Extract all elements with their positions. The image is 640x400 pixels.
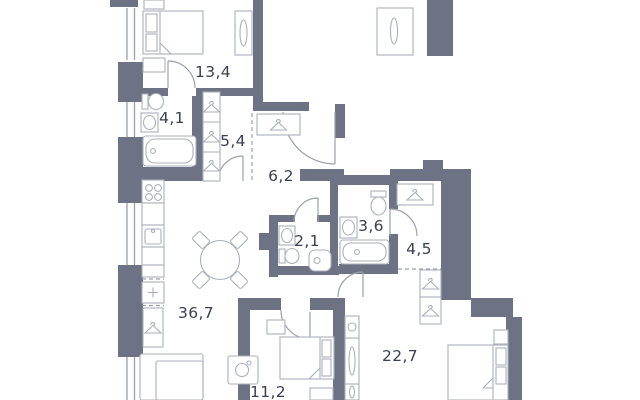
wall [250, 298, 281, 310]
cabinet-hanger [143, 308, 163, 347]
washer [309, 250, 331, 271]
window [127, 102, 135, 137]
room-label-bathroom-ensuite: 4,1 [159, 109, 185, 127]
kitchen-counter [142, 203, 164, 225]
window [127, 8, 135, 60]
toilet [142, 94, 164, 110]
room-label-hallway: 5,4 [220, 132, 246, 150]
closet-corridor [257, 114, 300, 135]
sink [141, 113, 158, 132]
nightstand [310, 388, 333, 400]
nightstand [144, 0, 164, 9]
toilet-wc [279, 249, 299, 264]
wall [238, 298, 250, 400]
room-label-hall-small: 4,5 [406, 240, 432, 258]
nightstand [143, 58, 165, 72]
door-hallway [218, 156, 243, 181]
bathtub-main [340, 240, 389, 264]
closet-hallway [203, 92, 220, 181]
sofa [140, 354, 203, 400]
closet-bedroom-large [420, 270, 441, 324]
bed-large [448, 345, 508, 400]
kitchen-sink [142, 225, 164, 247]
nightstand [494, 330, 508, 344]
wall-top-left-block [110, 0, 138, 7]
wall-stub [259, 233, 269, 250]
wall [471, 298, 513, 317]
closet-hall [397, 184, 433, 205]
floor-plan-svg: 13,4 4,1 5,4 6,2 2,1 3,6 4,5 36,7 11,2 2… [0, 0, 640, 400]
door-bedroom-large [338, 272, 363, 297]
door-wc [294, 198, 318, 222]
window [127, 203, 135, 265]
wall [337, 175, 398, 185]
kitchen-counter [142, 247, 164, 265]
wardrobe-mirror [235, 11, 252, 55]
dining-table [192, 231, 248, 289]
wardrobe-neighbour [377, 8, 413, 55]
coffee-table [228, 356, 258, 384]
wardrobe-column [345, 316, 359, 400]
wall [339, 264, 398, 274]
wall [253, 102, 309, 111]
bed-small [280, 337, 334, 379]
floor-plan: 13,4 4,1 5,4 6,2 2,1 3,6 4,5 36,7 11,2 2… [0, 0, 640, 400]
room-label-entry-corridor: 6,2 [268, 167, 294, 185]
kitchen-stove [142, 180, 164, 203]
wall [253, 0, 263, 111]
wall [335, 104, 345, 138]
sink-main [340, 217, 357, 238]
door-bedroom-master [168, 61, 195, 88]
room-label-wc: 2,1 [294, 232, 320, 250]
wall-pillar [118, 265, 143, 357]
window [127, 357, 135, 400]
bed-master [143, 11, 203, 54]
door-bathroom-main [390, 209, 417, 236]
sink-wc [279, 226, 295, 245]
kitchen-cell-cross [142, 282, 164, 303]
room-label-bedroom-master: 13,4 [195, 63, 231, 81]
kitchen-counter [142, 265, 164, 277]
toilet-main [371, 191, 386, 215]
room-label-living-kitchen: 36,7 [178, 304, 214, 322]
wall [317, 215, 331, 222]
bathtub [143, 136, 196, 166]
wall-neighbour [427, 0, 453, 56]
room-label-bathroom-main: 3,6 [358, 217, 384, 235]
nightstand [267, 320, 285, 334]
room-label-bedroom-small: 11,2 [250, 383, 286, 400]
room-label-bedroom-large: 22,7 [382, 347, 418, 365]
wall [423, 160, 443, 178]
wall [333, 298, 345, 400]
wall [441, 169, 471, 300]
